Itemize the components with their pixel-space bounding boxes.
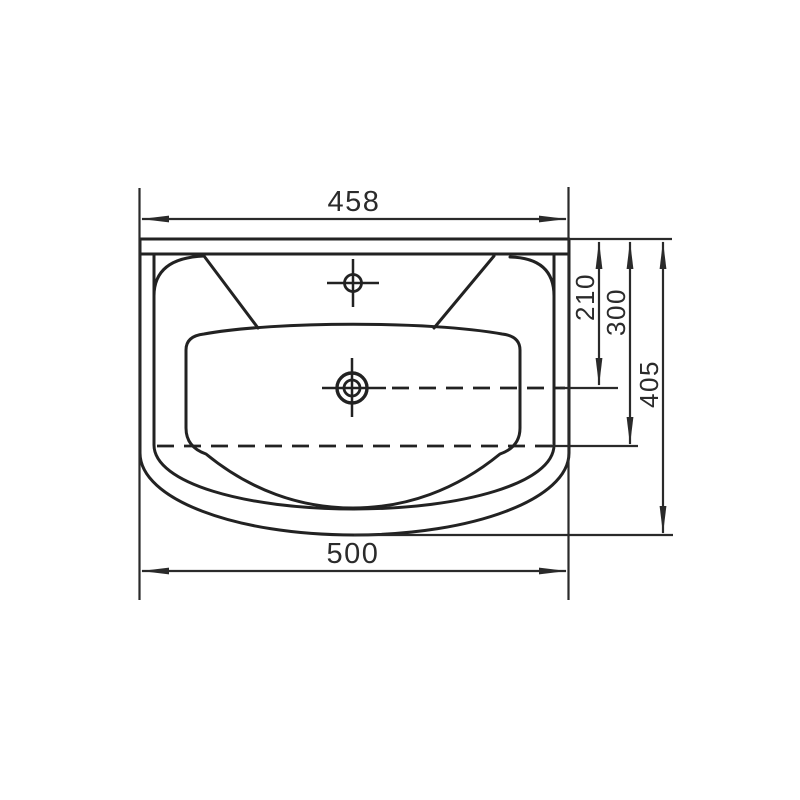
dim-label-depth-overall: 405 [634,360,664,408]
right-shelf-diagonal [434,256,494,328]
dim-label-width-overall: 500 [327,538,380,570]
hidden-lines [157,388,565,446]
dim-label-depth-to-basin-front: 300 [601,288,631,336]
dimension-labels: 458 500 210 300 405 [327,186,664,570]
extension-lines [140,187,674,600]
left-shelf-diagonal [204,256,258,328]
dim-label-width-top: 458 [328,186,381,218]
washbasin-drawing-svg: 458 500 210 300 405 [0,0,800,800]
fixture-symbols [322,259,386,417]
left-shelf-corner-curve [154,256,204,296]
sink-top-edge-band [140,239,569,254]
dim-label-depth-to-drain: 210 [570,273,600,321]
drawing-page: 458 500 210 300 405 [0,0,800,800]
faucet-hole-icon [327,259,379,307]
drain-hole-icon [322,358,386,417]
right-shelf-corner-curve [510,257,554,296]
